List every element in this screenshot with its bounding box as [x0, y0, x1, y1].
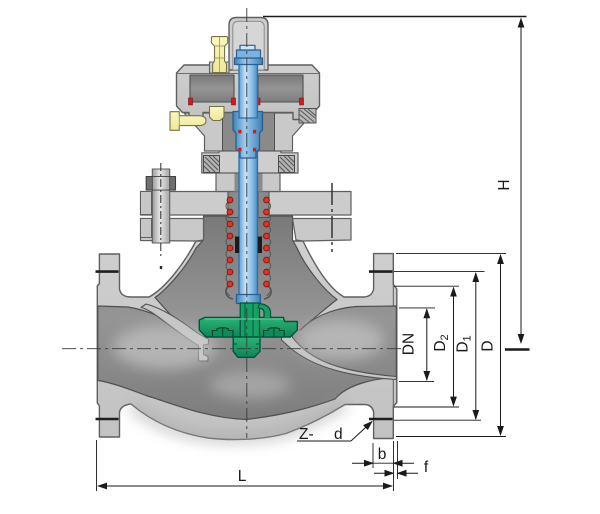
svg-text:D: D [480, 340, 497, 351]
svg-text:f: f [424, 459, 429, 476]
svg-text:Z-: Z- [299, 426, 314, 443]
svg-text:L: L [238, 468, 247, 485]
svg-text:H: H [496, 179, 513, 190]
svg-text:b: b [378, 446, 387, 463]
svg-text:DN: DN [401, 333, 418, 355]
svg-text:d: d [334, 426, 343, 443]
